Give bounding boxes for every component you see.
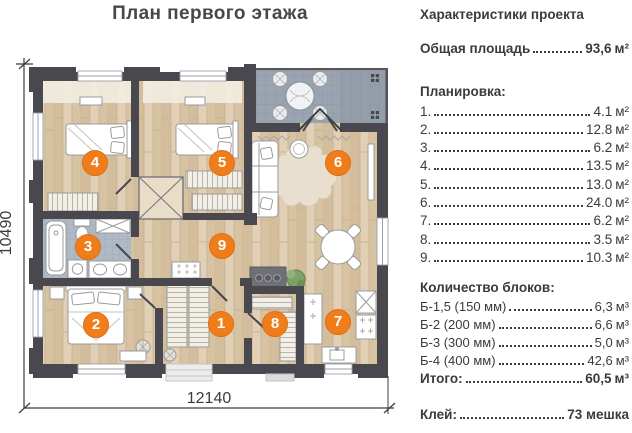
dot-leader	[499, 345, 592, 347]
basket-icon	[164, 349, 176, 361]
dot-leader	[509, 309, 591, 311]
layout-item-number: 8.	[420, 232, 431, 247]
block-item-label: Б-1,5 (150 мм)	[420, 299, 506, 314]
dot-leader	[434, 132, 583, 134]
block-item-value: 6,6	[595, 317, 613, 332]
room-number-badge: 1	[208, 311, 234, 337]
layout-item-number: 4.	[420, 158, 431, 173]
block-item-row: Б-2 (200 мм) 6,6 м³	[420, 314, 629, 332]
layout-item-value: 10.3	[586, 250, 612, 265]
layout-item-row: 9. 10.3 м²	[420, 247, 629, 265]
layout-item-number: 6.	[420, 195, 431, 210]
layout-item-number: 1.	[420, 104, 431, 119]
room-number-badge: 5	[209, 150, 235, 176]
panel-heading: Характеристики проекта	[420, 6, 629, 23]
washer-icon	[68, 260, 87, 278]
total-area-label: Общая площадь	[420, 41, 530, 56]
layout-item-value: 6.2	[593, 213, 612, 228]
dot-leader	[434, 260, 583, 262]
room-number-badge: 9	[209, 233, 235, 259]
layout-item-value: 13.0	[586, 177, 612, 192]
shelf-icon	[192, 194, 242, 210]
room-number-badge: 2	[83, 312, 109, 338]
dot-leader	[499, 363, 585, 365]
total-area-value: 93,6	[585, 41, 611, 56]
layout-item-value: 13.5	[586, 158, 612, 173]
blocks-heading: Количество блоков:	[420, 279, 629, 296]
wardrobe-icon	[189, 284, 209, 347]
layout-item-row: 7. 6.2 м²	[420, 210, 629, 228]
blocks-total-unit: м³	[615, 371, 629, 386]
block-item-value: 42,6	[587, 353, 612, 368]
floor-plan: 12140 10490 1 2 3 4 5 6 7 8 9	[0, 0, 412, 433]
dot-leader	[434, 223, 590, 225]
dot-leader	[460, 417, 564, 419]
layout-item-number: 3.	[420, 140, 431, 155]
layout-item-row: 4. 13.5 м²	[420, 155, 629, 173]
vestibule	[139, 177, 183, 219]
block-item-unit: м³	[616, 299, 629, 314]
dot-leader	[434, 114, 590, 116]
dot-leader	[434, 187, 583, 189]
wardrobe-icon	[48, 193, 98, 211]
layout-item-number: 2.	[420, 122, 431, 137]
blocks-total-label: Итого:	[420, 371, 463, 386]
block-item-unit: м³	[616, 335, 629, 350]
dot-leader	[499, 327, 592, 329]
cabinet-icon	[96, 219, 130, 233]
nightstand-icon	[128, 287, 142, 299]
layout-item-value: 24.0	[586, 195, 612, 210]
layout-item-unit: м²	[615, 122, 629, 137]
layout-heading: Планировка:	[420, 83, 629, 100]
bench-icon	[172, 262, 200, 278]
block-item-unit: м³	[616, 353, 629, 368]
screenshot-root: План первого этажа	[0, 0, 632, 433]
bathtub-icon	[46, 221, 66, 275]
dot-leader	[466, 381, 583, 383]
total-area-unit: м²	[615, 41, 629, 56]
layout-item-unit: м²	[615, 232, 629, 247]
layout-item-unit: м²	[615, 177, 629, 192]
layout-item-unit: м²	[615, 158, 629, 173]
layout-item-unit: м²	[615, 140, 629, 155]
tv-icon	[368, 144, 374, 200]
plant-icon	[287, 270, 306, 289]
stove-island-icon	[250, 267, 286, 288]
shelf-icon	[252, 297, 292, 309]
layout-item-number: 7.	[420, 213, 431, 228]
room-number-badge: 7	[325, 309, 351, 335]
dot-leader	[434, 150, 590, 152]
block-item-label: Б-3 (300 мм)	[420, 335, 496, 350]
sink-icon	[89, 261, 131, 278]
block-item-label: Б-2 (200 мм)	[420, 317, 496, 332]
layout-item-number: 9.	[420, 250, 431, 265]
block-item-row: Б-4 (400 мм) 42,6 м³	[420, 350, 629, 368]
glue-value: 73 мешка	[567, 407, 629, 422]
floor-plan-svg: 12140 10490	[0, 0, 412, 433]
project-info-panel: Характеристики проекта Общая площадь 93,…	[420, 6, 629, 422]
layout-item-value: 6.2	[593, 140, 612, 155]
wardrobe-icon	[167, 284, 187, 347]
layout-item-row: 5. 13.0 м²	[420, 173, 629, 191]
dimension-width-label: 12140	[187, 390, 232, 407]
block-item-row: Б-1,5 (150 мм) 6,3 м³	[420, 296, 629, 314]
dot-leader	[434, 168, 583, 170]
layout-item-row: 1. 4.1 м²	[420, 100, 629, 118]
nightstand-icon	[50, 287, 64, 299]
layout-item-value: 3.5	[593, 232, 612, 247]
layout-item-row: 8. 3.5 м²	[420, 228, 629, 246]
block-item-label: Б-4 (400 мм)	[420, 353, 496, 368]
glue-row: Клей: 73 мешка	[420, 404, 629, 422]
dining-table-icon	[314, 223, 362, 271]
layout-item-row: 2. 12.8 м²	[420, 119, 629, 137]
glue-label: Клей:	[420, 407, 457, 422]
room-number-badge: 3	[75, 234, 101, 260]
layout-item-unit: м²	[615, 250, 629, 265]
dot-leader	[434, 242, 590, 244]
dot-leader	[533, 51, 582, 53]
layout-item-row: 3. 6.2 м²	[420, 137, 629, 155]
layout-item-number: 5.	[420, 177, 431, 192]
dresser-icon	[120, 351, 146, 361]
block-item-unit: м³	[616, 317, 629, 332]
block-item-row: Б-3 (300 мм) 5,0 м³	[420, 332, 629, 350]
blocks-total-row: Итого: 60,5 м³	[420, 368, 629, 386]
room-number-badge: 8	[262, 311, 288, 337]
layout-item-unit: м²	[615, 104, 629, 119]
sofa-icon	[252, 141, 278, 217]
room-number-badge: 6	[325, 150, 351, 176]
layout-item-row: 6. 24.0 м²	[420, 192, 629, 210]
room-number-badge: 4	[82, 150, 108, 176]
layout-item-unit: м²	[615, 195, 629, 210]
layout-item-value: 12.8	[586, 122, 612, 137]
layout-item-unit: м²	[615, 213, 629, 228]
layout-item-value: 4.1	[593, 104, 612, 119]
coffee-table-icon	[290, 140, 308, 158]
block-item-value: 5,0	[595, 335, 613, 350]
block-item-value: 6,3	[595, 299, 613, 314]
dimension-height-label: 10490	[0, 211, 15, 256]
dot-leader	[434, 205, 583, 207]
total-area-row: Общая площадь 93,6 м²	[420, 38, 629, 56]
blocks-total-value: 60,5	[585, 371, 611, 386]
